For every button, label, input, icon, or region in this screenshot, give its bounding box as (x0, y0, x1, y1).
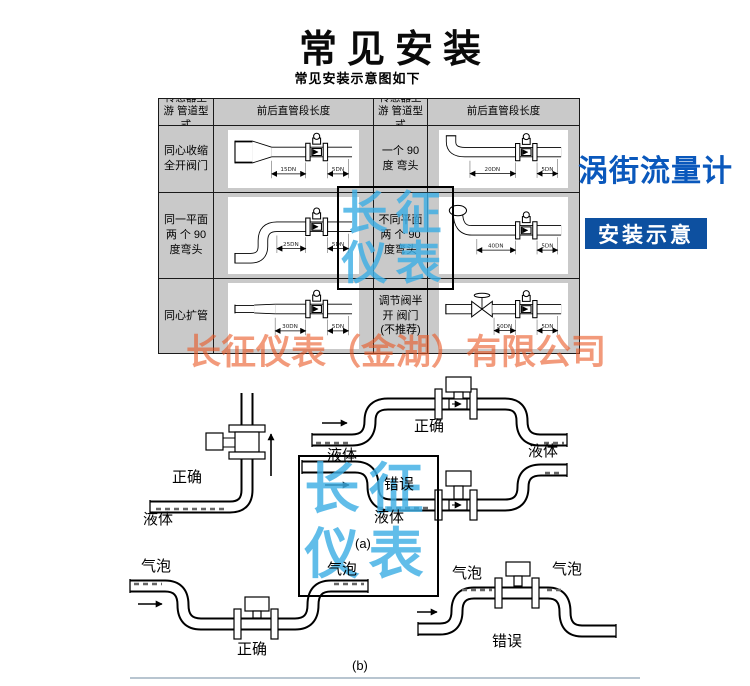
vertical-meter-correct (150, 393, 271, 514)
label-liquid: 液体 (528, 444, 558, 461)
header-straight-length-right: 前后直管段长度 (428, 99, 579, 126)
hump-meter-wrong (417, 562, 616, 638)
dim-upstream: 40DN (488, 244, 504, 250)
row1-left-label: 同心收缩 全开阀门 (159, 126, 214, 193)
figure-a-label: (a) (355, 536, 371, 551)
label-liquid: 液体 (374, 510, 404, 527)
watermark-text: 仪表 (300, 522, 437, 587)
dim-upstream: 25DN (283, 242, 299, 248)
dim-downstream: 5DN (332, 167, 344, 173)
product-name: 涡街流量计 (578, 146, 750, 190)
label-wrong: 错误 (492, 634, 522, 651)
diagram-reducer: 15DN 5DN (228, 130, 359, 188)
header-pipe-type-left: 传感器上游 管道型式 (159, 99, 214, 126)
watermark-text: 长征 (339, 188, 452, 238)
dim-upstream: 15DN (280, 167, 296, 173)
elbow-pipe-diagram: 20DN 5DN (439, 130, 568, 188)
watermark-box-top: 长征 仪表 (337, 186, 454, 290)
dim-downstream: 5DN (541, 244, 553, 250)
label-liquid: 液体 (143, 512, 173, 529)
row2-left-label: 同一平面两 个 90 度弯头 (159, 193, 214, 279)
label-bubble: 气泡 (327, 562, 357, 579)
page-title: 常见安装 (240, 18, 550, 73)
reducer-pipe-diagram: 15DN 5DN (228, 130, 359, 188)
product-installation-page: 常见安装 常见安装示意图如下 传感器上游 管道型式 前后直管段长度 传感器上游 … (0, 0, 750, 686)
label-correct: 正确 (172, 470, 202, 487)
label-bubble: 气泡 (552, 562, 582, 579)
label-correct: 正确 (414, 419, 444, 436)
header-straight-length-left: 前后直管段长度 (214, 99, 374, 126)
bottom-divider (130, 677, 640, 679)
label-liquid: 液体 (327, 448, 357, 465)
watermark-text: 仪表 (339, 238, 452, 288)
valve-icon (472, 293, 493, 317)
company-watermark: 长征仪表（金湖）有限公司 (186, 324, 606, 375)
top-meter-correct (312, 377, 567, 447)
header-pipe-type-right: 传感器上游 管道型式 (374, 99, 428, 126)
diagram-single-elbow: 20DN 5DN (439, 130, 568, 188)
label-wrong: 错误 (384, 477, 414, 494)
watermark-box-bottom: 长征 仪表 (298, 455, 439, 597)
dim-upstream: 20DN (485, 167, 501, 173)
watermark-text: 长征 (300, 457, 437, 522)
label-bubble: 气泡 (141, 559, 171, 576)
installation-badge: 安装示意 (585, 218, 707, 249)
dim-downstream: 5DN (541, 167, 553, 173)
figure-b-label: (b) (352, 658, 368, 673)
row1-right-label: 一个 90 度 弯头 (374, 126, 428, 193)
page-subtitle: 常见安装示意图如下 (250, 68, 465, 87)
out-of-plane-elbow-diagram: 40DN 5DN (439, 197, 568, 274)
label-bubble: 气泡 (452, 566, 482, 583)
diagram-two-elbows-diff-plane: 40DN 5DN (439, 197, 568, 274)
label-correct: 正确 (237, 642, 267, 659)
